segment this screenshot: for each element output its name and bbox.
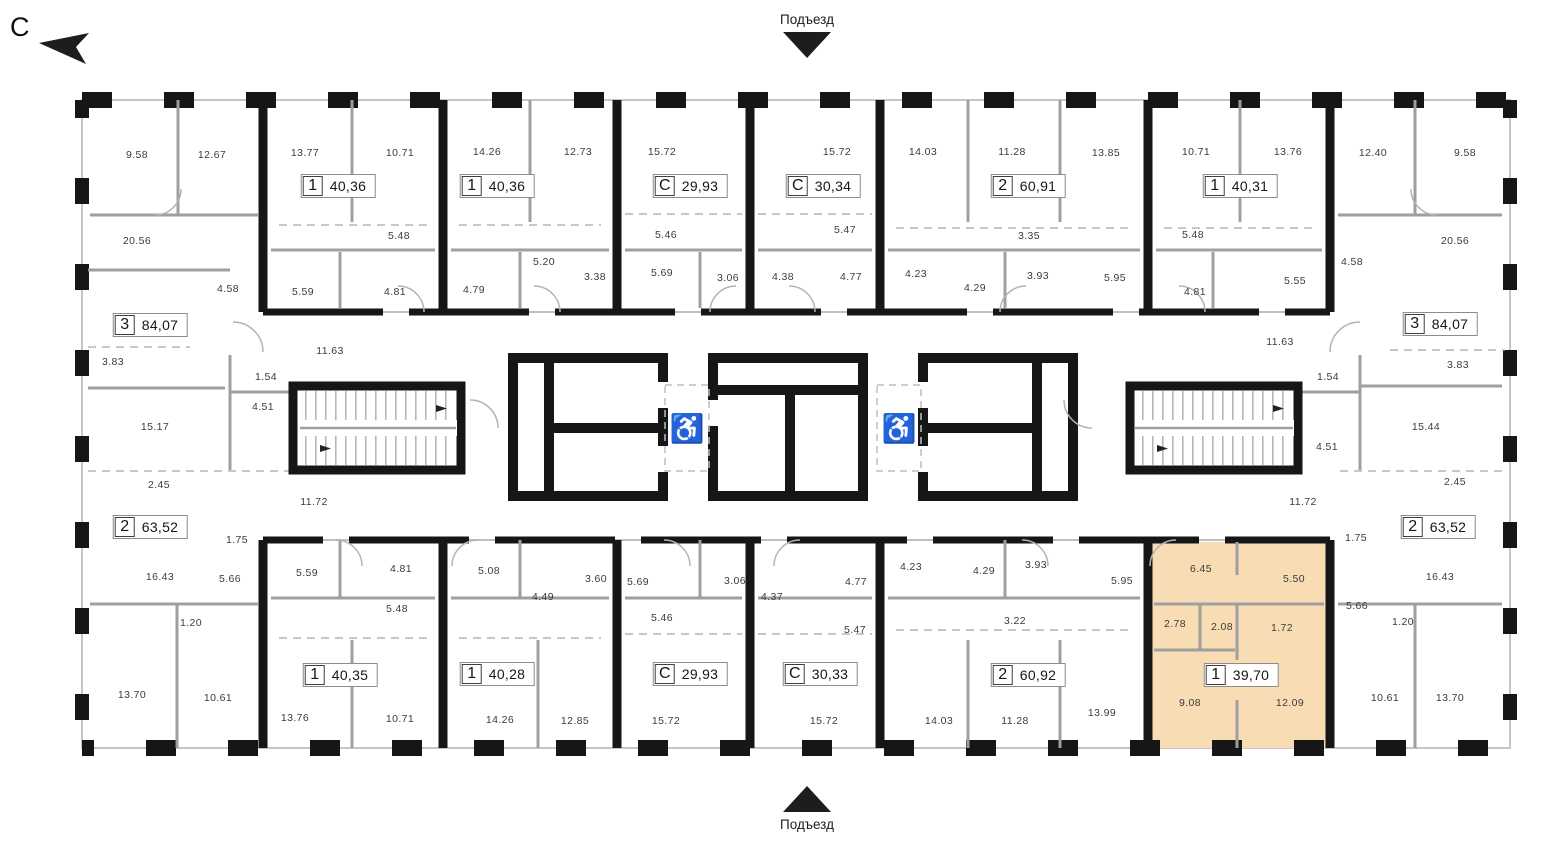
apartment-area-label: 40,31 [1225, 178, 1276, 194]
apartment-area-label: 40,35 [325, 667, 376, 683]
apartment-rooms-label: 2 [115, 517, 135, 537]
apartment-area-label: 39,70 [1226, 667, 1277, 683]
apartment-area-label: 30,33 [805, 666, 856, 682]
apartment-badge[interactable]: С30,33 [783, 662, 858, 686]
apartment-badge-selected[interactable]: 139,70 [1204, 663, 1279, 687]
apartment-badge[interactable]: 260,91 [991, 174, 1066, 198]
apartment-rooms-label: 2 [993, 176, 1013, 196]
staircase-right [1130, 386, 1298, 470]
apartment-area-label: 60,91 [1013, 178, 1064, 194]
elevator-block-right [918, 358, 1073, 496]
apartment-badge[interactable]: С29,93 [653, 662, 728, 686]
apartment-area-label: 63,52 [1423, 519, 1474, 535]
apartment-rooms-label: 3 [115, 315, 135, 335]
apartment-area-label: 84,07 [135, 317, 186, 333]
apartment-area-label: 40,36 [482, 178, 533, 194]
elevator-block-center [708, 358, 863, 496]
apartment-badge[interactable]: 140,31 [1203, 174, 1278, 198]
apartment-area-label: 30,34 [808, 178, 859, 194]
apartment-rooms-label: С [655, 664, 675, 684]
apartment-area-label: 29,93 [675, 178, 726, 194]
apartment-rooms-label: 3 [1405, 314, 1425, 334]
apartment-rooms-label: 1 [1205, 176, 1225, 196]
wheelchair-icon: ♿ [670, 412, 705, 445]
apartment-rooms-label: С [788, 176, 808, 196]
apartment-badge[interactable]: 140,28 [460, 662, 535, 686]
apartment-badge[interactable]: 140,36 [301, 174, 376, 198]
floor-plan-drawing: ♿ ♿ [0, 0, 1561, 848]
apartment-rooms-label: С [785, 664, 805, 684]
apartment-badge[interactable]: С30,34 [786, 174, 861, 198]
apartment-rooms-label: С [655, 176, 675, 196]
floor-plan-page: С Подъезд Подъезд [0, 0, 1561, 848]
apartment-area-label: 40,36 [323, 178, 374, 194]
apartment-badge[interactable]: 260,92 [991, 663, 1066, 687]
apartment-area-label: 60,92 [1013, 667, 1064, 683]
apartment-rooms-label: 1 [303, 176, 323, 196]
apartment-rooms-label: 1 [305, 665, 325, 685]
apartment-rooms-label: 1 [1206, 665, 1226, 685]
staircase-left [293, 386, 461, 470]
apartment-area-label: 84,07 [1425, 316, 1476, 332]
apartment-badge[interactable]: 140,36 [460, 174, 535, 198]
elevator-block-left [513, 358, 668, 496]
wheelchair-icon: ♿ [882, 412, 917, 445]
apartment-rooms-label: 1 [462, 664, 482, 684]
apartment-area-label: 63,52 [135, 519, 186, 535]
apartment-badge[interactable]: С29,93 [653, 174, 728, 198]
apartment-rooms-label: 2 [993, 665, 1013, 685]
apartment-rooms-label: 2 [1403, 517, 1423, 537]
apartment-badge[interactable]: 263,52 [113, 515, 188, 539]
apartment-area-label: 40,28 [482, 666, 533, 682]
apartment-area-label: 29,93 [675, 666, 726, 682]
apartment-badge[interactable]: 140,35 [303, 663, 378, 687]
apartment-rooms-label: 1 [462, 176, 482, 196]
selected-apartment-highlight[interactable] [1148, 542, 1330, 748]
apartment-badge[interactable]: 384,07 [113, 313, 188, 337]
apartment-badge[interactable]: 263,52 [1401, 515, 1476, 539]
apartment-badge[interactable]: 384,07 [1403, 312, 1478, 336]
